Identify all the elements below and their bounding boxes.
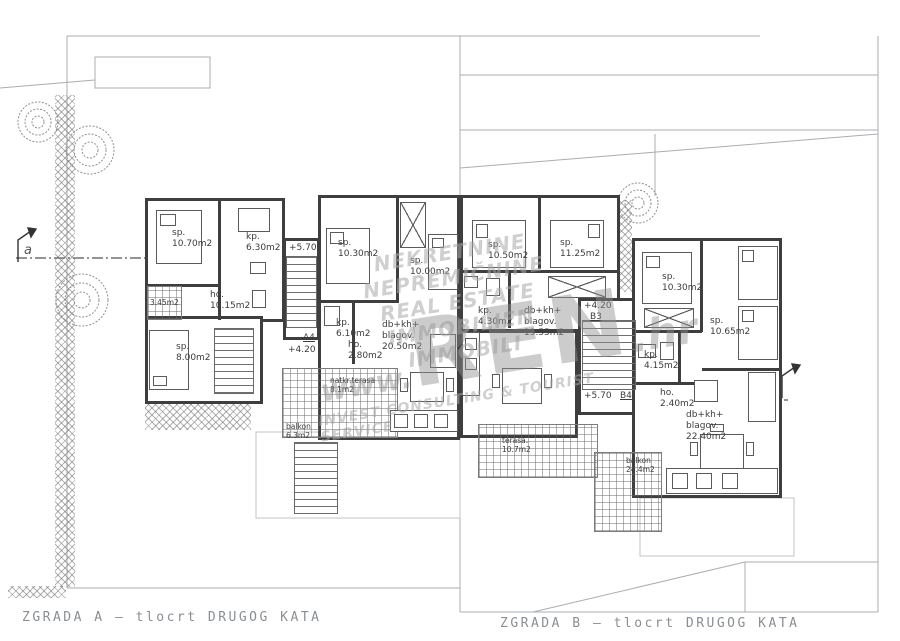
title-building-a: ZGRADA A — tlocrt DRUGOG KATA — [22, 610, 321, 625]
stairs-unit-a1 — [214, 328, 254, 394]
closet-xbox — [400, 202, 426, 248]
sink — [394, 414, 408, 428]
chair — [690, 442, 698, 456]
room-label-a2-hall: ho. 2.80m2 — [348, 340, 383, 362]
side-table — [694, 380, 718, 402]
pillow — [742, 250, 754, 262]
floor-plan-canvas: a a — [0, 0, 900, 641]
sink — [250, 262, 266, 274]
room-label-a1-bedroom2: sp. 8.00m2 — [176, 342, 211, 364]
room-label-b4-bedroom2: sp. 10.65m2 — [710, 316, 750, 338]
sofa — [430, 334, 456, 368]
room-label-a1-bedroom1: sp. 10.70m2 — [172, 228, 212, 250]
room-label-a1-loggia: 3.45m2 — [150, 298, 179, 307]
room-label-a2-bathroom: kp. 6.10m2 — [336, 318, 371, 340]
pillow — [588, 224, 600, 238]
closet-xbox — [548, 276, 606, 298]
room-label-b3-bedroom1: sp. 10.50m2 — [488, 240, 528, 262]
room-label-a2-balcony: balkon 6.3m2 — [286, 422, 311, 440]
partition — [538, 197, 541, 269]
chair — [544, 374, 552, 388]
partition — [634, 382, 702, 385]
elevation-a-top: +5.70 — [289, 243, 317, 254]
dining-table — [502, 368, 542, 404]
stove — [465, 358, 477, 370]
pillow — [432, 238, 444, 248]
room-label-a2-bedroom1: sp. 10.30m2 — [338, 238, 378, 260]
room-label-a2-terrace: natkr.terasa 8.1m2 — [330, 376, 375, 394]
sofa — [748, 372, 776, 422]
terrace-b3 — [478, 424, 598, 478]
elevation-a-bottom: +4.20 — [288, 345, 316, 356]
partition — [320, 300, 398, 303]
sink — [672, 473, 688, 489]
room-label-a2-bedroom2: sp. 10.00m2 — [410, 256, 450, 278]
stairs-stairwell-a — [286, 256, 317, 328]
elevation-b-bottom: +5.70 — [584, 391, 612, 402]
room-label-b3-terrace: terasa. 10.7m2 — [502, 436, 531, 454]
pillow — [160, 214, 176, 226]
closet — [238, 208, 270, 232]
closet-xbox — [644, 308, 694, 328]
chair — [492, 374, 500, 388]
room-label-b3-bedroom2: sp. 11.25m2 — [560, 238, 600, 260]
room-label-a2-living: db+kh+ blagov. 20.50m2 — [382, 320, 422, 352]
unit-label-a4: A4 — [303, 333, 315, 344]
room-label-b4-bathroom: kp. 4.15m2 — [644, 350, 679, 372]
dining-table — [410, 372, 444, 402]
boundary-hatch-bottom — [8, 586, 66, 598]
toilet — [252, 290, 266, 308]
unit-label-b3: B3 — [590, 312, 602, 323]
room-label-b4-bedroom1: sp. 10.30m2 — [662, 272, 702, 294]
room-label-b4-hall: ho. 2.40m2 — [660, 388, 695, 410]
chair — [400, 378, 408, 392]
title-building-b: ZGRADA B — tlocrt DRUGOG KATA — [500, 616, 799, 631]
partition — [396, 197, 399, 303]
room-label-a1-bathroom: kp. 6.30m2 — [246, 232, 281, 254]
appliance — [434, 414, 448, 428]
sink — [465, 338, 477, 350]
toilet — [486, 278, 500, 296]
elevation-b-top: +4.20 — [584, 301, 612, 312]
appliance — [722, 473, 738, 489]
room-label-b4-living: db+kh+ blagov. 22.40m2 — [686, 410, 726, 442]
stairs-external-a — [294, 442, 338, 514]
partition — [702, 368, 780, 371]
room-label-b3-living: db+kh+ blagov. 19.55m2 — [524, 306, 564, 338]
hatch-between-units-b — [618, 200, 632, 292]
partition — [634, 330, 702, 333]
pillow — [646, 256, 660, 268]
unit-label-b4: B4 — [620, 391, 632, 402]
room-label-a1-hall: ho. 10.15m2 — [210, 290, 250, 312]
stove — [414, 414, 428, 428]
pillow — [476, 224, 488, 238]
chair — [746, 442, 754, 456]
terrace-below-a1 — [145, 404, 251, 430]
chair — [446, 378, 454, 392]
room-label-b4-balcony: balkon 24.4m2 — [626, 456, 655, 474]
sink — [464, 276, 478, 288]
stove — [696, 473, 712, 489]
room-label-b3-bathroom: kp. 4.30m2 — [478, 306, 513, 328]
section-marker-a-left: a — [24, 243, 32, 258]
partition — [462, 270, 618, 273]
boundary-hatch-strip — [55, 95, 75, 587]
stairs-stairwell-b — [582, 320, 636, 390]
pillow — [153, 376, 167, 386]
